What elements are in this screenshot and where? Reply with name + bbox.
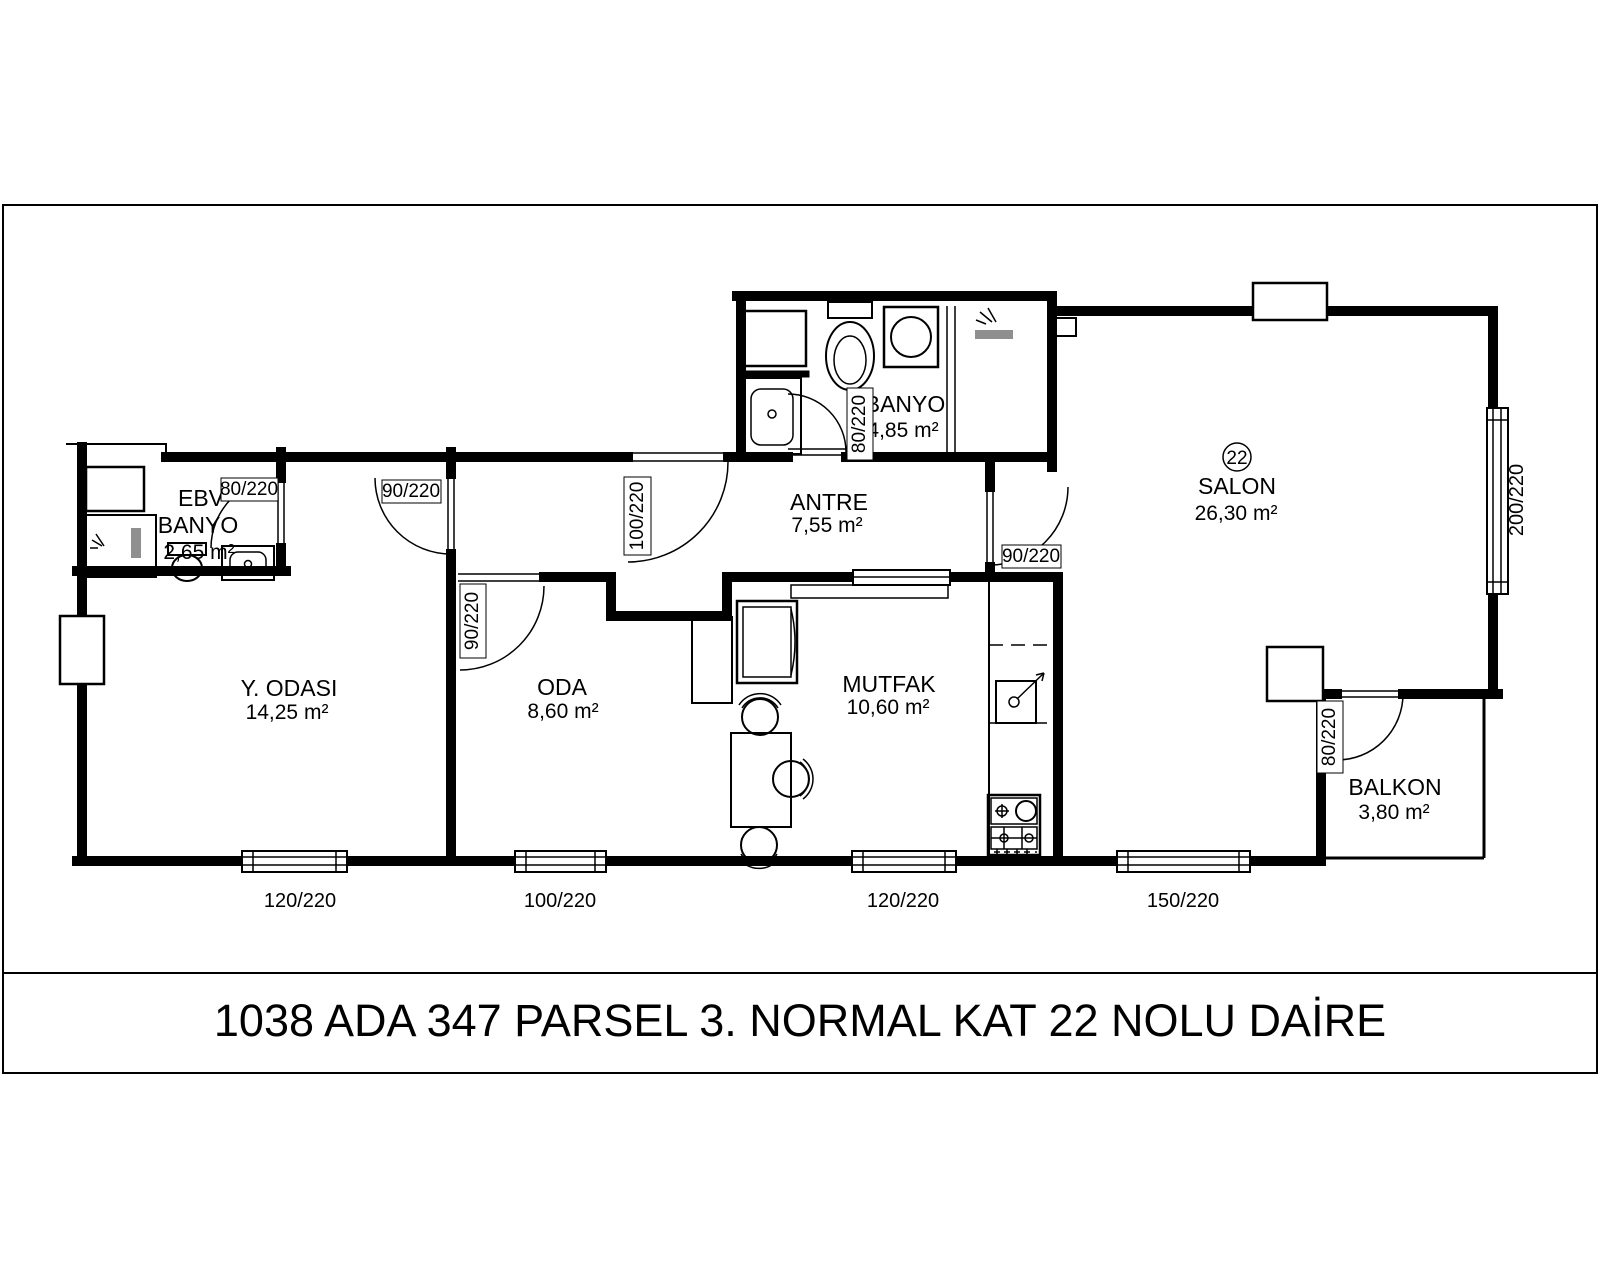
banyo-cabinet	[744, 311, 806, 366]
room-label-oda: ODA 8,60 m²	[527, 674, 598, 723]
floor-plan-drawing: EBV BANYO 2,65 m² BANYO 4,85 m² ANTRE 7,…	[0, 0, 1600, 1280]
kitchen-counter	[988, 582, 1053, 856]
shower-head-icon	[975, 330, 1013, 339]
door-label-banyo: 80/220	[847, 388, 873, 460]
door-size: 80/220	[1319, 708, 1340, 766]
ebv-cabinet	[86, 467, 144, 511]
banyo-shower	[975, 308, 1013, 339]
banyo-sink	[743, 378, 801, 454]
room-label-salon: 22 SALON 26,30 m²	[1195, 443, 1278, 525]
door-size: 100/220	[627, 482, 648, 551]
door-size: 90/220	[462, 592, 483, 650]
window-salon-east	[1487, 408, 1508, 594]
room-area: 2,65 m²	[163, 541, 234, 564]
door-label-ebv: 80/220	[220, 478, 278, 501]
room-area: 10,60 m²	[847, 696, 930, 719]
duct-box-salon-top	[1253, 283, 1327, 320]
window-y-odasi	[242, 851, 347, 872]
duct-box-left-wall	[60, 616, 104, 684]
banyo-washing-machine	[884, 307, 938, 367]
sheet-frame	[3, 205, 1597, 1073]
door-balkon	[1337, 691, 1403, 760]
room-area: 7,55 m²	[791, 514, 862, 537]
room-area: 4,85 m²	[867, 419, 938, 442]
room-name: BALKON	[1348, 774, 1441, 800]
room-label-y-odasi: Y. ODASI 14,25 m²	[241, 675, 338, 724]
door-label-y-odasi: 90/220	[382, 480, 441, 503]
room-label-balkon: BALKON 3,80 m²	[1348, 774, 1441, 824]
window-size: 200/220	[1506, 464, 1528, 536]
room-name: EBV	[178, 485, 225, 511]
window-size: 150/220	[1147, 890, 1219, 912]
window-oda	[515, 851, 606, 872]
unit-number: 22	[1226, 448, 1247, 469]
mutfak-cabinet	[692, 617, 732, 703]
mutfak-fixtures	[692, 582, 1053, 868]
room-area: 3,80 m²	[1358, 801, 1429, 824]
door-banyo	[788, 394, 846, 455]
room-name: MUTFAK	[842, 671, 936, 697]
room-area: 8,60 m²	[527, 700, 598, 723]
window-size: 120/220	[867, 890, 939, 912]
door-size: 90/220	[1002, 546, 1060, 567]
room-name: ANTRE	[790, 489, 868, 515]
wall-duct-notch	[611, 577, 727, 616]
sheet-border	[3, 205, 1597, 1073]
walls	[66, 296, 1498, 861]
room-area: 14,25 m²	[246, 701, 329, 724]
room-label-mutfak: MUTFAK 10,60 m²	[842, 671, 936, 719]
window-mutfak	[852, 851, 956, 872]
room-area: 26,30 m²	[1195, 502, 1278, 525]
room-label-banyo: BANYO 4,85 m²	[865, 391, 946, 442]
room-name: ODA	[537, 674, 588, 700]
kitchen-stove	[988, 795, 1040, 855]
wall-shower-partition	[947, 306, 955, 452]
window-size: 100/220	[524, 890, 596, 912]
door-size: 80/220	[849, 395, 870, 453]
window-salon-south	[1117, 851, 1250, 872]
mutfak-chairs	[738, 694, 813, 869]
floor-plan-sheet: EBV BANYO 2,65 m² BANYO 4,85 m² ANTRE 7,…	[0, 0, 1600, 1280]
door-label-salon: 90/220	[1002, 545, 1061, 568]
room-name: SALON	[1198, 473, 1276, 499]
door-label-entrance: 100/220	[624, 477, 651, 555]
door-label-balkon: 80/220	[1317, 701, 1343, 773]
banyo-toilet	[826, 302, 874, 390]
room-name: BANYO	[158, 512, 239, 538]
door-label-oda: 90/220	[460, 584, 486, 658]
window-size: 120/220	[264, 890, 336, 912]
door-size: 90/220	[382, 481, 440, 502]
mutfak-fridge	[737, 601, 797, 683]
room-name: Y. ODASI	[241, 675, 338, 701]
column-salon-top-left	[1056, 318, 1076, 336]
kitchen-sink	[996, 673, 1044, 723]
door-size: 80/220	[220, 479, 278, 500]
mutfak-table	[731, 733, 791, 827]
duct-box-balkon-corner	[1267, 647, 1323, 701]
shower-head-icon	[131, 528, 141, 558]
room-name: BANYO	[865, 391, 946, 417]
sheet-title: 1038 ADA 347 PARSEL 3. NORMAL KAT 22 NOL…	[214, 995, 1386, 1046]
room-label-antre: ANTRE 7,55 m²	[790, 489, 868, 537]
